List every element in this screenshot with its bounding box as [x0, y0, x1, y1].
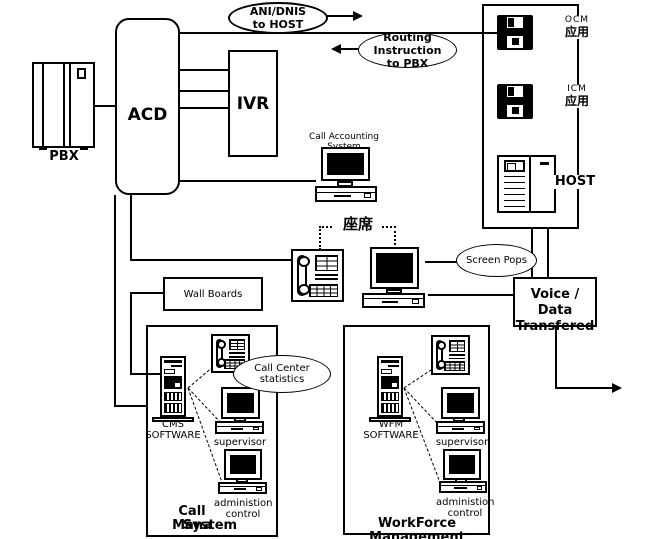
connector-line	[114, 405, 147, 407]
arrow-right-icon	[612, 383, 622, 393]
icm-floppy-icon	[497, 84, 533, 119]
cms-tower-icon	[160, 356, 186, 417]
connector-line	[130, 292, 164, 294]
host-label: HOST	[553, 175, 597, 189]
icm-app-label: 应用	[556, 95, 598, 108]
ani-dnis-line1: ANI/DNIS	[250, 5, 306, 18]
wall-boards-label: Wall Boards	[165, 289, 261, 300]
agent-phone-icon	[291, 249, 344, 302]
connector-line	[180, 107, 228, 109]
connector-line	[547, 229, 549, 277]
agent-seat-label: 座席	[334, 216, 382, 233]
wfm-supervisor-label: supervisor	[435, 437, 489, 448]
diagram-canvas: PBX ACD IVR ANI/DNIS to HOST Routing Ins…	[0, 0, 665, 539]
wfm-tower-icon	[377, 356, 403, 417]
cms-title-line2: System	[182, 519, 238, 533]
voice-data-box: Voice / Data Transfered	[513, 277, 597, 327]
wfm-phone-icon	[431, 335, 470, 375]
ivr-label: IVR	[230, 95, 276, 114]
connector-line	[180, 32, 498, 34]
ivr-box: IVR	[228, 50, 278, 157]
connector-line	[428, 294, 513, 296]
connector-line	[130, 195, 132, 261]
wfm-title: WorkForce Management	[346, 517, 488, 539]
connector-line	[180, 180, 316, 182]
agent-seat-bracket	[319, 226, 321, 250]
acd-label: ACD	[117, 106, 178, 125]
ani-dnis-ellipse: ANI/DNIS to HOST	[228, 2, 328, 34]
acd-box: ACD	[115, 18, 180, 195]
connector-line	[555, 327, 557, 388]
cms-admin-label: administion control	[214, 498, 272, 520]
wfm-software-label: WFM SOFTWARE	[362, 419, 420, 441]
connector-line	[180, 69, 228, 71]
call-center-stats-ellipse: Call Center statistics	[233, 355, 331, 393]
connector-line	[130, 259, 292, 261]
cms-software-label: CMS SOFTWARE	[143, 419, 203, 441]
arrow-right-icon	[353, 11, 363, 21]
routing-line2: Instruction	[374, 44, 442, 57]
arrow-left-icon	[331, 44, 341, 54]
ani-dnis-line2: to HOST	[253, 18, 304, 31]
connector-line	[130, 292, 132, 375]
voice-data-line2: Transfered	[515, 319, 595, 335]
ocm-floppy-icon	[497, 15, 533, 50]
screen-pops-ellipse: Screen Pops	[456, 244, 537, 277]
connector-line	[327, 15, 354, 17]
connector-line	[425, 261, 457, 263]
routing-line1: Routing	[383, 31, 432, 44]
connector-line	[555, 387, 613, 389]
routing-line3: to PBX	[387, 57, 429, 70]
pbx-label: PBX	[40, 150, 88, 164]
voice-data-line1: Voice / Data	[515, 287, 595, 319]
host-icon	[497, 155, 556, 213]
connector-line	[180, 90, 228, 92]
cms-supervisor-label: supervisor	[213, 437, 267, 448]
agent-seat-bracket	[394, 226, 396, 249]
screen-pops-label: Screen Pops	[466, 255, 527, 266]
connector-line	[114, 195, 116, 407]
wall-boards-box: Wall Boards	[163, 277, 263, 311]
ocm-app-label: 应用	[556, 26, 598, 39]
pbx-icon	[32, 62, 95, 148]
connector-line	[95, 105, 115, 107]
routing-ellipse: Routing Instruction to PBX	[358, 32, 457, 68]
connector-line	[340, 48, 359, 50]
